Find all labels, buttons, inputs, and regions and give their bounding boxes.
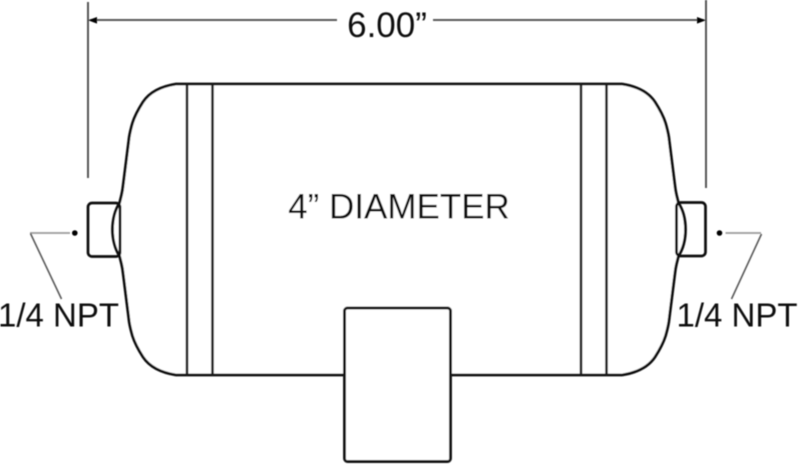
svg-text:4” DIAMETER: 4” DIAMETER (288, 188, 510, 227)
svg-text:6.00”: 6.00” (347, 6, 427, 45)
svg-text:1/4 NPT: 1/4 NPT (0, 297, 119, 334)
svg-text:1/4 NPT: 1/4 NPT (677, 297, 798, 334)
